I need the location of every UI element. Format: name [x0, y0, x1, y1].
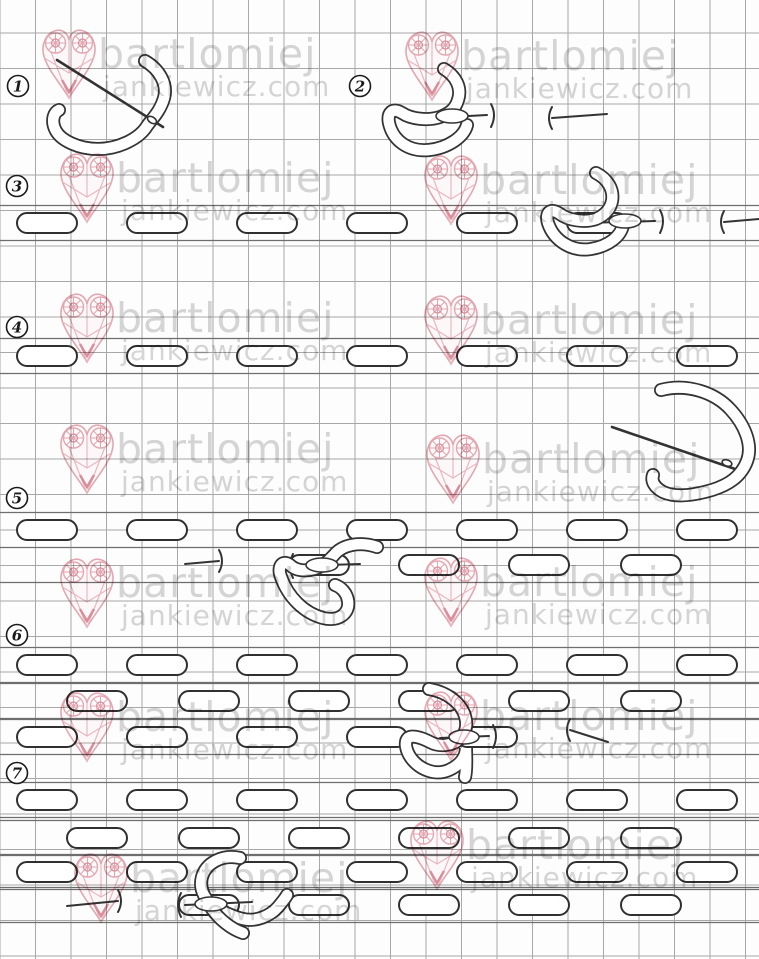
running-stitch — [567, 655, 627, 675]
running-stitch — [127, 655, 187, 675]
running-stitch — [127, 520, 187, 540]
running-stitch — [509, 895, 569, 915]
watermark-domain-text: jankiewicz.com — [120, 733, 348, 766]
running-stitch — [347, 655, 407, 675]
step-number-label: 3 — [12, 177, 22, 195]
watermark-domain-text: jankiewicz.com — [134, 894, 362, 927]
watermark-domain-text: jankiewicz.com — [484, 598, 712, 631]
step-number-label: 7 — [12, 764, 23, 782]
running-stitch — [17, 862, 77, 882]
running-stitch — [457, 790, 517, 810]
step-number-label: 1 — [13, 77, 23, 95]
watermark-domain-text: jankiewicz.com — [470, 861, 698, 894]
step-badge-1: 1 — [8, 76, 29, 97]
step-number-label: 2 — [354, 77, 365, 95]
running-stitch — [677, 520, 737, 540]
running-stitch — [457, 520, 517, 540]
watermark-domain-text: jankiewicz.com — [486, 475, 714, 508]
running-stitch — [17, 655, 77, 675]
step-badge-6: 6 — [7, 625, 28, 646]
watermark-domain-text: jankiewicz.com — [120, 599, 348, 632]
running-stitch — [399, 895, 459, 915]
needle-eye-icon — [436, 109, 468, 123]
step-badge-7: 7 — [7, 763, 28, 784]
running-stitch — [347, 862, 407, 882]
watermark-domain-text: jankiewicz.com — [465, 72, 693, 105]
running-stitch — [347, 213, 407, 233]
running-stitch — [567, 790, 627, 810]
watermark-domain-text: jankiewicz.com — [102, 70, 330, 103]
watermark-domain-text: jankiewicz.com — [120, 465, 348, 498]
running-stitch — [289, 828, 349, 848]
running-stitch — [567, 520, 627, 540]
running-stitch — [457, 655, 517, 675]
step-badge-4: 4 — [7, 317, 28, 338]
watermark-domain-text: jankiewicz.com — [120, 194, 348, 227]
running-stitch — [127, 790, 187, 810]
running-stitch — [17, 213, 77, 233]
watermark-domain-text: jankiewicz.com — [120, 334, 348, 367]
step-badge-2: 2 — [350, 76, 371, 97]
running-stitch — [17, 520, 77, 540]
watermark-domain-text: jankiewicz.com — [484, 196, 712, 229]
step-number-label: 4 — [12, 318, 22, 336]
running-stitch — [347, 346, 407, 366]
step-badge-3: 3 — [7, 176, 28, 197]
watermark-domain-text: jankiewicz.com — [484, 336, 712, 369]
step-badge-5: 5 — [7, 488, 28, 509]
running-stitch — [677, 790, 737, 810]
watermark-domain-text: jankiewicz.com — [484, 732, 712, 765]
step-number-label: 5 — [12, 489, 22, 507]
step-number-label: 6 — [12, 626, 23, 644]
running-stitch — [67, 828, 127, 848]
running-stitch — [17, 790, 77, 810]
running-stitch — [621, 895, 681, 915]
running-stitch — [347, 520, 407, 540]
running-stitch — [237, 655, 297, 675]
running-stitch — [17, 346, 77, 366]
running-stitch — [347, 727, 407, 747]
running-stitch — [237, 790, 297, 810]
stitch-tutorial-diagram: 1234567 bartlomiejjankiewicz.combartlomi… — [0, 0, 759, 959]
running-stitch — [347, 790, 407, 810]
running-stitch — [237, 520, 297, 540]
running-stitch — [179, 828, 239, 848]
running-stitch — [677, 655, 737, 675]
